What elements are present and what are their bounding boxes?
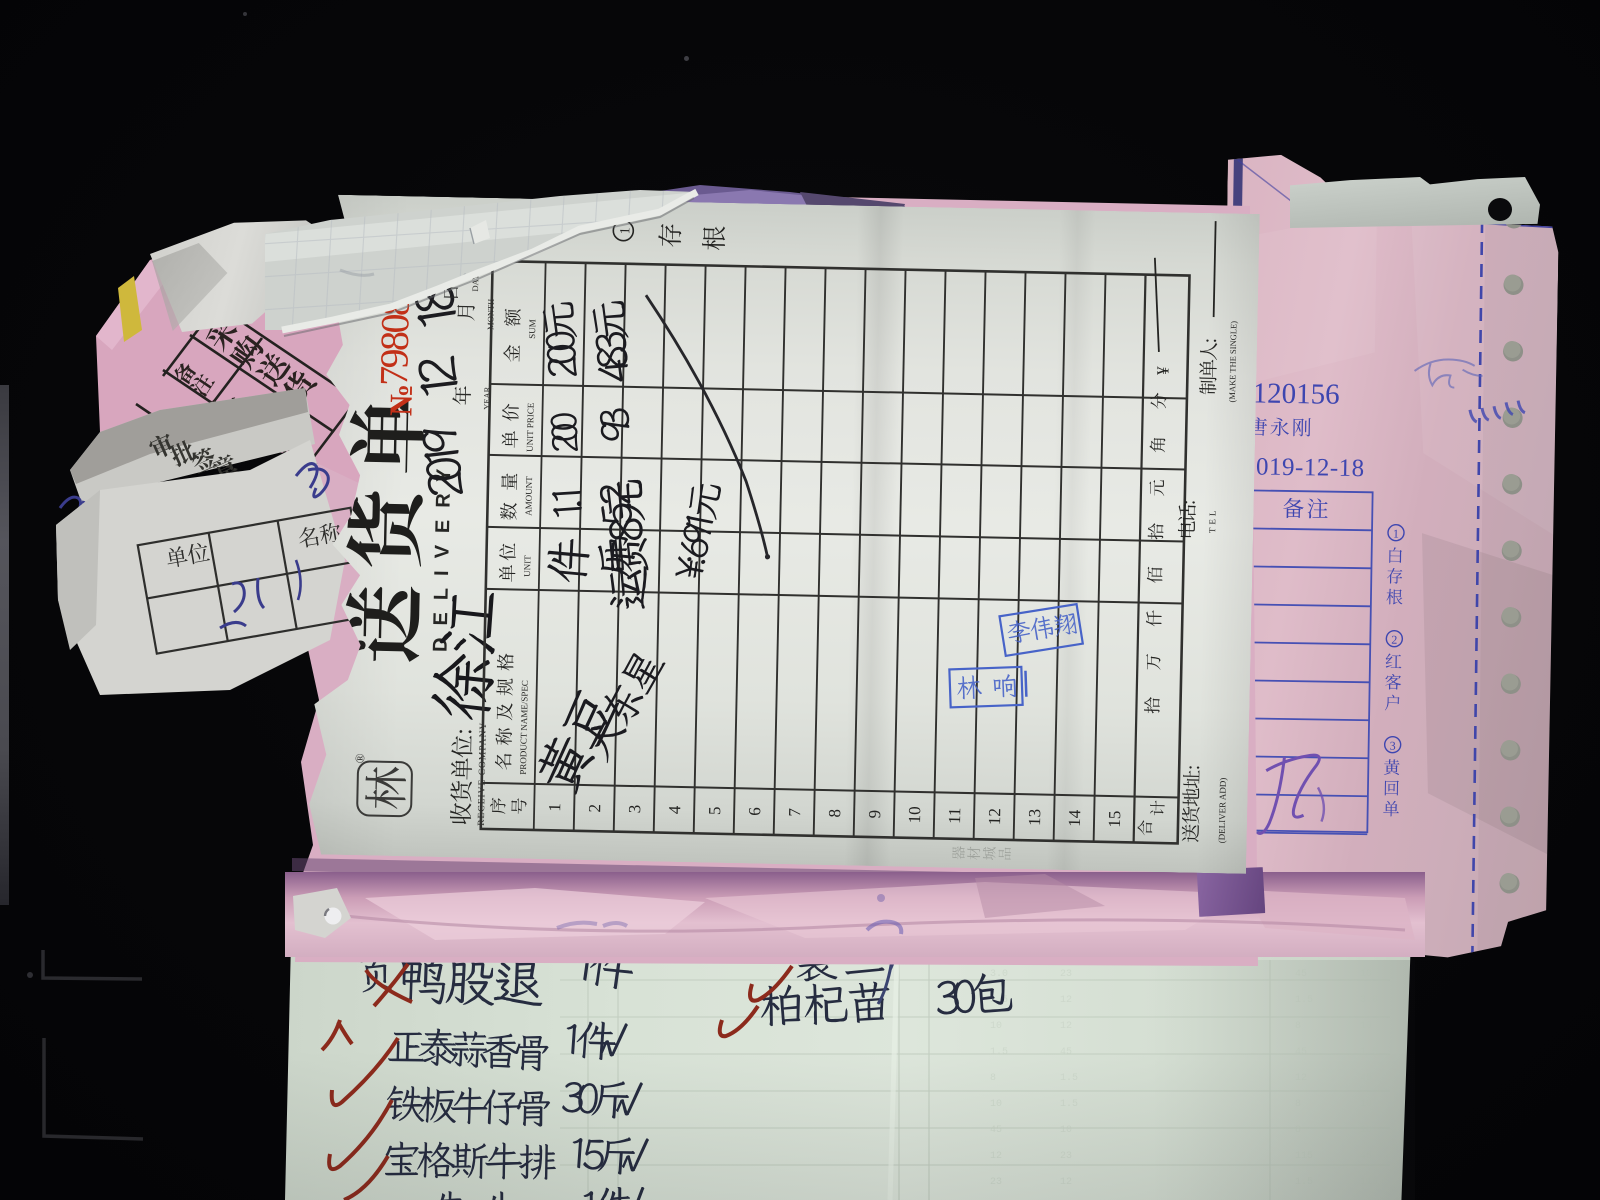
svg-text:9: 9 [865,810,884,819]
svg-text:TEL: TEL [1207,507,1218,533]
svg-text:6: 6 [745,807,764,816]
svg-text:PRODUCT NAME/SPEC: PRODUCT NAME/SPEC [518,680,530,775]
svg-text:1: 1 [545,803,564,812]
svg-text:(MAKE THE SINGLE): (MAKE THE SINGLE) [1227,321,1239,403]
svg-text:(DELIVER ADD): (DELIVER ADD) [1217,778,1228,844]
svg-text:8: 8 [825,809,844,818]
svg-text:10: 10 [905,806,924,823]
svg-text:®: ® [352,753,367,763]
svg-text:14: 14 [1065,809,1084,827]
svg-text:№: № [382,384,419,417]
svg-text:12: 12 [985,808,1004,825]
svg-text:3: 3 [625,805,644,814]
svg-text:7: 7 [785,807,804,816]
svg-text:UNIT PRICE: UNIT PRICE [525,402,536,452]
svg-text:AMOUNT: AMOUNT [523,476,534,516]
svg-text:¥: ¥ [1153,366,1172,375]
svg-text:11: 11 [945,807,964,824]
svg-text:4: 4 [665,805,684,814]
svg-text:UNIT: UNIT [522,555,532,577]
svg-text:15: 15 [1105,810,1124,827]
svg-text:5: 5 [705,806,724,815]
svg-text:13: 13 [1025,809,1044,826]
svg-text:2: 2 [585,804,604,813]
